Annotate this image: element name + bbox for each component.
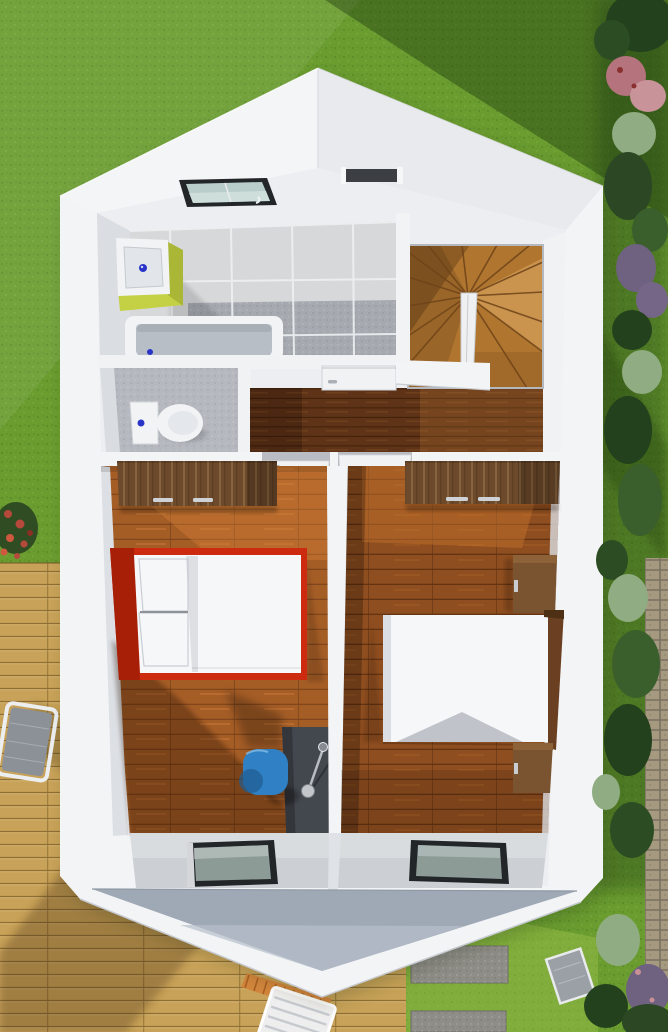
nightstand-body (513, 743, 553, 793)
bathroom-door (322, 366, 396, 390)
house (60, 68, 603, 997)
nightstand-top-face (513, 555, 557, 563)
double-bed-red (110, 548, 324, 682)
shrub (604, 396, 652, 464)
flower (27, 530, 33, 536)
wardrobe-dark-end (247, 461, 277, 506)
chair-back (239, 769, 263, 793)
shrub-sage (608, 574, 648, 622)
sink-faucet (139, 264, 147, 272)
flower (6, 534, 14, 542)
shrub (584, 984, 628, 1028)
wardrobe-shadow (119, 506, 277, 513)
shrub (596, 540, 628, 580)
door-leaf (322, 366, 396, 390)
bathtub (125, 316, 283, 361)
floorplan-screenshot (0, 0, 668, 1032)
tub-drain (147, 349, 153, 355)
flower (21, 541, 28, 548)
shrub-sage (622, 350, 662, 394)
hallway-floor-highlight (420, 388, 545, 453)
shrub-sage (592, 774, 620, 810)
shrub (604, 704, 652, 776)
toilet (130, 402, 203, 444)
south-wall (130, 833, 548, 890)
duvet-fold (383, 615, 391, 742)
pillow (139, 559, 188, 611)
window-bedroom-left (187, 840, 278, 887)
nightstand-handle (514, 763, 518, 774)
wardrobe-left (117, 461, 277, 513)
bedroom-right (341, 461, 564, 835)
shrub (610, 802, 654, 858)
vanity-sink (116, 238, 183, 311)
wc-right-wall (238, 364, 251, 456)
berry (635, 969, 641, 975)
sink-lime-side (168, 242, 183, 306)
floorplan-render (0, 0, 668, 1032)
pillow (139, 613, 188, 666)
wall-pier (330, 452, 338, 466)
wardrobe-right (405, 461, 560, 511)
berry (650, 998, 655, 1003)
shrub-sage (612, 112, 656, 156)
wardrobe-handle (153, 498, 173, 502)
nightstand-bottom (513, 743, 553, 793)
north-wall-doorway (341, 167, 403, 184)
toilet-button (138, 420, 145, 427)
door-handle (328, 380, 337, 384)
nightstand-handle (514, 580, 518, 592)
desk-lamp-base (302, 785, 315, 798)
berry (617, 67, 623, 73)
double-bed-right (363, 610, 564, 750)
toilet-seat (168, 411, 198, 435)
flower (1, 549, 8, 556)
nightstand-body (513, 555, 557, 613)
wardrobe-dark-end (518, 461, 560, 504)
bathroom-stair-wall (396, 213, 410, 363)
wardrobe-handle (446, 497, 468, 501)
flower (14, 553, 20, 559)
bedroom-left (101, 461, 331, 852)
nightstand-shadow (505, 558, 513, 613)
flower (4, 510, 12, 518)
skylight-window (179, 178, 277, 207)
paver-path (645, 558, 668, 996)
wardrobe-handle (193, 498, 213, 502)
faucet-highlight (141, 266, 143, 268)
flower (16, 520, 25, 529)
nightstand-top (505, 555, 557, 613)
shrub (594, 20, 630, 60)
berry (632, 84, 637, 89)
shrub (612, 630, 660, 698)
slab-texture (411, 1011, 506, 1032)
wardrobe-shadow (405, 504, 558, 511)
window-bedroom-right (409, 840, 509, 884)
door-jamb (397, 167, 403, 184)
shrub-sage (596, 914, 640, 966)
shrub (612, 310, 652, 350)
doorway-slot (345, 169, 398, 182)
desk-lamp-head (319, 743, 328, 752)
wardrobe-handle (478, 497, 500, 501)
door-jamb (341, 167, 346, 184)
nightstand-top-face (513, 743, 553, 750)
tub-inner-shadow (136, 324, 272, 332)
hallway-floor-shadow (250, 388, 302, 453)
shrub (618, 464, 662, 536)
